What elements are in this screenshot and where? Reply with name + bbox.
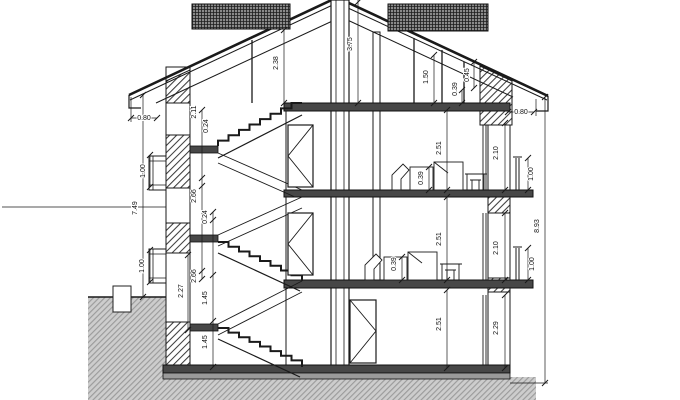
second-floor-slab (284, 190, 533, 197)
cabinet (408, 252, 437, 280)
dimension-label: 2.10 (493, 146, 500, 160)
dimension-label: 0.39 (452, 82, 459, 96)
roof-covering-band-left (192, 4, 290, 29)
first-floor-slab (284, 280, 533, 288)
dimension-label: 1.50 (423, 70, 430, 84)
center-wall-chimney (331, 0, 349, 368)
dimension-label: 1.00 (528, 167, 535, 181)
dimension-label: 2.38 (273, 56, 280, 70)
dimension-label: 1.00 (139, 259, 146, 273)
building-section-drawing: 0.801.007.491.002.272.110.242.660.242.66… (0, 0, 680, 400)
dimension-label: 0.80 (137, 115, 151, 122)
dimension-label: 2.29 (493, 321, 500, 335)
attic-floor-slab (284, 103, 510, 111)
dimension-label: 2.51 (436, 141, 443, 155)
dimension-label: 7.49 (132, 201, 139, 215)
dimension-label: 1.45 (202, 335, 209, 349)
left-window-lower (149, 249, 166, 283)
ground-slab (163, 365, 510, 373)
cabinet (434, 162, 463, 190)
stair-landing (190, 324, 218, 331)
stair-landing (190, 146, 218, 153)
foundation-band (163, 373, 510, 379)
dimension-label: 2.66 (191, 269, 198, 283)
door-ground-floor (350, 300, 376, 363)
dimension-label: 8.93 (534, 219, 541, 233)
dimension-label: 0.39 (418, 171, 425, 185)
interior-wall (373, 32, 380, 288)
dimension-label: 0.39 (391, 257, 398, 271)
section-canvas: 0.801.007.491.002.272.110.242.660.242.66… (0, 0, 680, 400)
dimension-label: 2.10 (493, 241, 500, 255)
dimension-label: 1.00 (140, 164, 147, 178)
dimension-label: 3.75 (347, 37, 354, 51)
dimension-label: 2.27 (178, 284, 185, 298)
dimension-label: 2.51 (436, 232, 443, 246)
dimension-label: 2.66 (191, 189, 198, 203)
dimension-label: 1.00 (529, 257, 536, 271)
door-middle-floor (288, 213, 313, 275)
stair-landing (190, 235, 218, 242)
door-top-floor (288, 125, 313, 187)
dimension-label: 0.80 (514, 109, 528, 116)
dimension-label: 0.24 (202, 210, 209, 224)
dimension-label: 2.51 (436, 317, 443, 331)
dimension-label: 0.45 (464, 68, 471, 82)
dimension-label: 0.24 (203, 119, 210, 133)
dimension-label: 1.45 (202, 291, 209, 305)
roof-covering-band-right (388, 4, 488, 31)
dimension-label: 2.11 (191, 105, 198, 118)
exterior-step (113, 286, 131, 312)
